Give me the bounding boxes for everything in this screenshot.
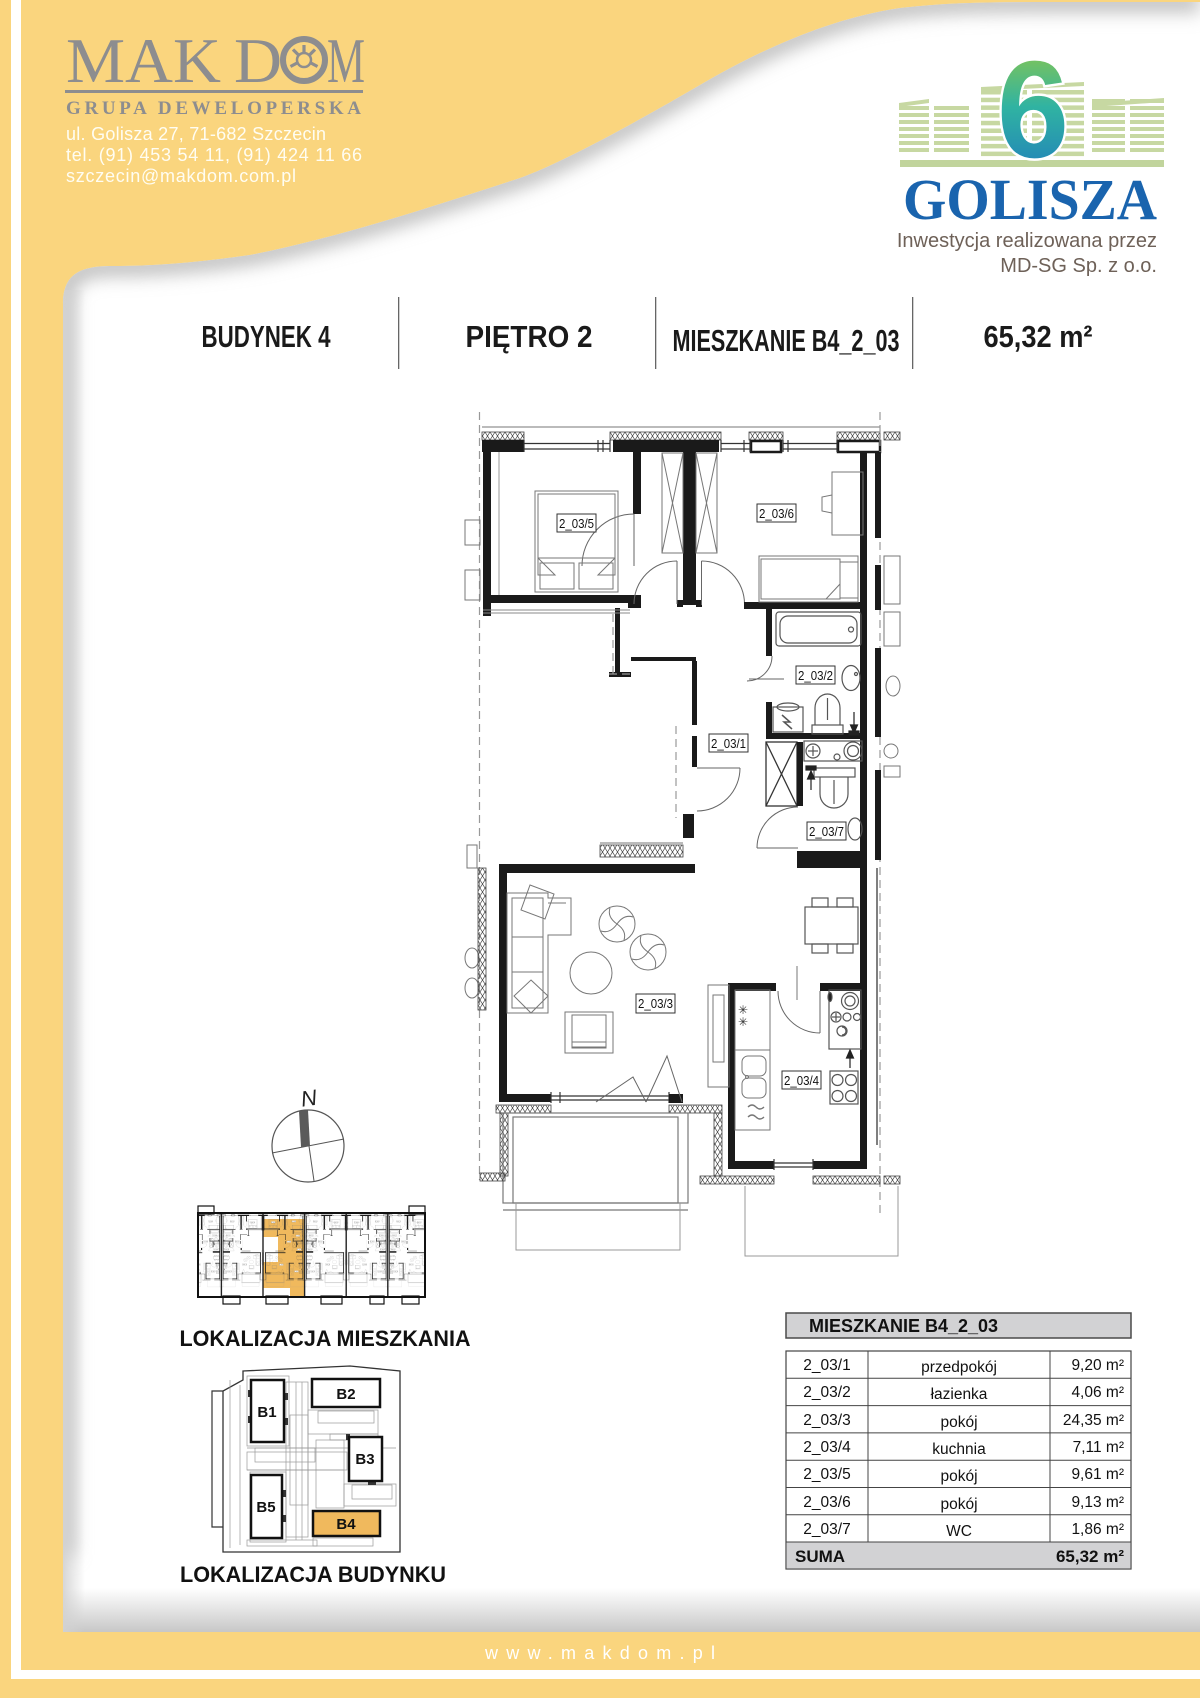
svg-text:GOLISZA: GOLISZA bbox=[903, 167, 1157, 232]
svg-text:LOKALIZACJA BUDYNKU: LOKALIZACJA BUDYNKU bbox=[180, 1562, 446, 1587]
svg-text:przedpokój: przedpokój bbox=[921, 1359, 997, 1376]
svg-text:2_03/1: 2_03/1 bbox=[803, 1357, 850, 1374]
svg-text:9,13 m²: 9,13 m² bbox=[1071, 1494, 1124, 1511]
svg-text:B5: B5 bbox=[256, 1499, 275, 1516]
svg-text:2_03/4: 2_03/4 bbox=[784, 1074, 819, 1088]
svg-text:4,06 m²: 4,06 m² bbox=[1071, 1384, 1124, 1401]
svg-text:B2: B2 bbox=[336, 1386, 355, 1403]
svg-text:2_03/3: 2_03/3 bbox=[638, 997, 673, 1011]
svg-text:D: D bbox=[234, 25, 282, 96]
svg-text:2_03/7: 2_03/7 bbox=[809, 825, 844, 839]
svg-text:tel. (91) 453 54 11, (91) 424: tel. (91) 453 54 11, (91) 424 11 66 bbox=[66, 145, 362, 165]
svg-text:PIĘTRO 2: PIĘTRO 2 bbox=[466, 319, 593, 354]
svg-text:2_03/4: 2_03/4 bbox=[803, 1439, 851, 1456]
svg-text:B3: B3 bbox=[355, 1451, 374, 1468]
svg-text:LOKALIZACJA MIESZKANIA: LOKALIZACJA MIESZKANIA bbox=[180, 1326, 471, 1351]
svg-text:BUDYNEK 4: BUDYNEK 4 bbox=[202, 319, 332, 354]
svg-text:9,20 m²: 9,20 m² bbox=[1071, 1357, 1124, 1374]
svg-text:Inwestycja realizowana przez: Inwestycja realizowana przez bbox=[897, 230, 1157, 252]
svg-text:2_03/2: 2_03/2 bbox=[798, 669, 833, 683]
svg-text:9,61 m²: 9,61 m² bbox=[1071, 1466, 1124, 1483]
svg-text:2_03/6: 2_03/6 bbox=[803, 1494, 850, 1511]
svg-text:2_03/6: 2_03/6 bbox=[759, 507, 794, 521]
svg-text:pokój: pokój bbox=[940, 1414, 977, 1431]
svg-text:łazienka: łazienka bbox=[931, 1386, 988, 1403]
svg-text:SUMA: SUMA bbox=[795, 1547, 845, 1566]
svg-text:ul. Golisza 27, 71-682 Szczeci: ul. Golisza 27, 71-682 Szczecin bbox=[66, 124, 326, 144]
svg-text:2_03/7: 2_03/7 bbox=[803, 1521, 850, 1538]
svg-text:MIESZKANIE B4_2_03: MIESZKANIE B4_2_03 bbox=[673, 323, 900, 358]
svg-text:2_03/1: 2_03/1 bbox=[711, 737, 746, 751]
svg-text:6: 6 bbox=[997, 33, 1069, 187]
svg-text:2_03/5: 2_03/5 bbox=[803, 1466, 850, 1483]
svg-text:M: M bbox=[327, 25, 365, 96]
svg-text:MD-SG Sp. z o.o.: MD-SG Sp. z o.o. bbox=[1000, 255, 1157, 277]
svg-text:2_03/2: 2_03/2 bbox=[803, 1384, 850, 1401]
svg-text:24,35 m²: 24,35 m² bbox=[1063, 1412, 1124, 1429]
svg-text:✳: ✳ bbox=[738, 1015, 748, 1029]
svg-text:kuchnia: kuchnia bbox=[932, 1441, 986, 1458]
svg-text:MAK: MAK bbox=[66, 25, 221, 96]
svg-text:szczecin@makdom.com.pl: szczecin@makdom.com.pl bbox=[66, 166, 296, 186]
svg-text:MIESZKANIE B4_2_03: MIESZKANIE B4_2_03 bbox=[809, 1316, 998, 1336]
svg-text:2_03/5: 2_03/5 bbox=[559, 517, 594, 531]
svg-text:7,11 m²: 7,11 m² bbox=[1073, 1439, 1124, 1456]
svg-text:B1: B1 bbox=[257, 1404, 276, 1421]
svg-text:pokój: pokój bbox=[940, 1496, 977, 1513]
svg-text:pokój: pokój bbox=[940, 1468, 977, 1485]
svg-text:WC: WC bbox=[946, 1523, 972, 1540]
svg-text:B4: B4 bbox=[336, 1516, 356, 1533]
svg-text:GRUPA DEWELOPERSKA: GRUPA DEWELOPERSKA bbox=[66, 98, 361, 119]
svg-text:2_03/3: 2_03/3 bbox=[803, 1412, 850, 1429]
svg-text:65,32 m²: 65,32 m² bbox=[1056, 1547, 1124, 1566]
svg-text:1,86 m²: 1,86 m² bbox=[1071, 1521, 1124, 1538]
svg-text:65,32 m²: 65,32 m² bbox=[984, 319, 1093, 354]
